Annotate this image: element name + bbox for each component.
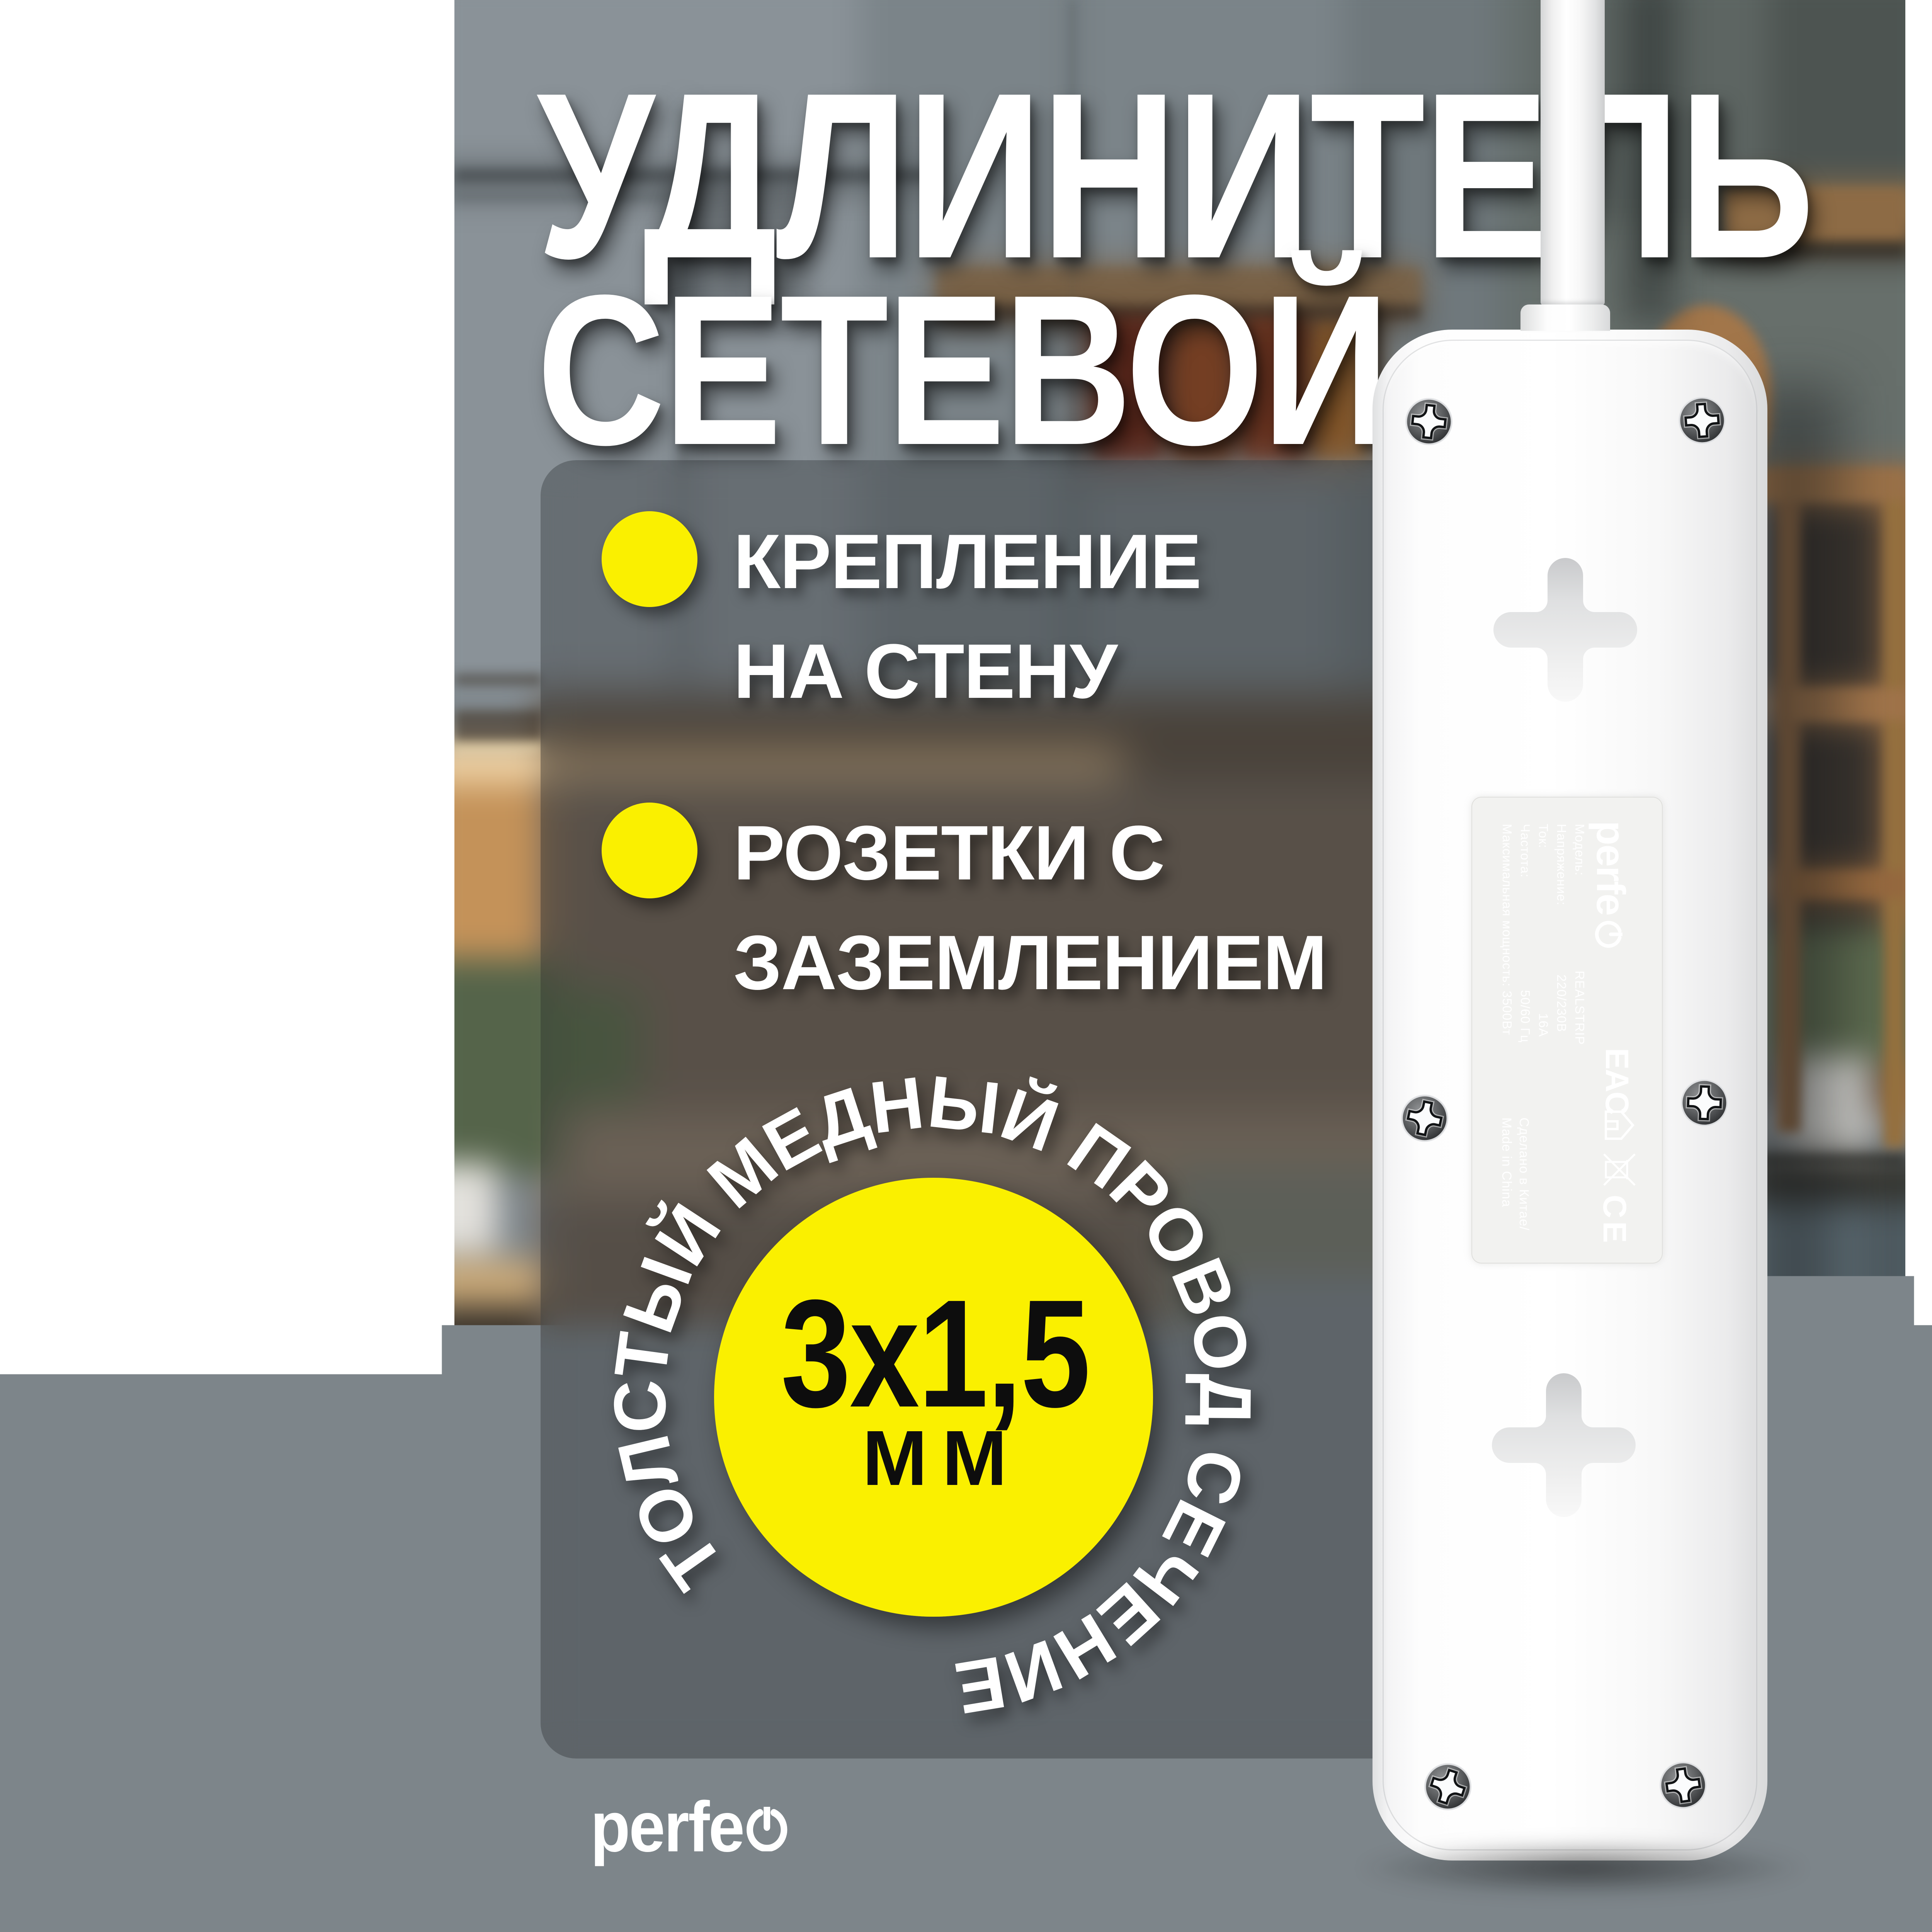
svg-text:ММ: ММ [862,1414,1022,1502]
svg-text:3x1,5: 3x1,5 [781,1267,1089,1439]
